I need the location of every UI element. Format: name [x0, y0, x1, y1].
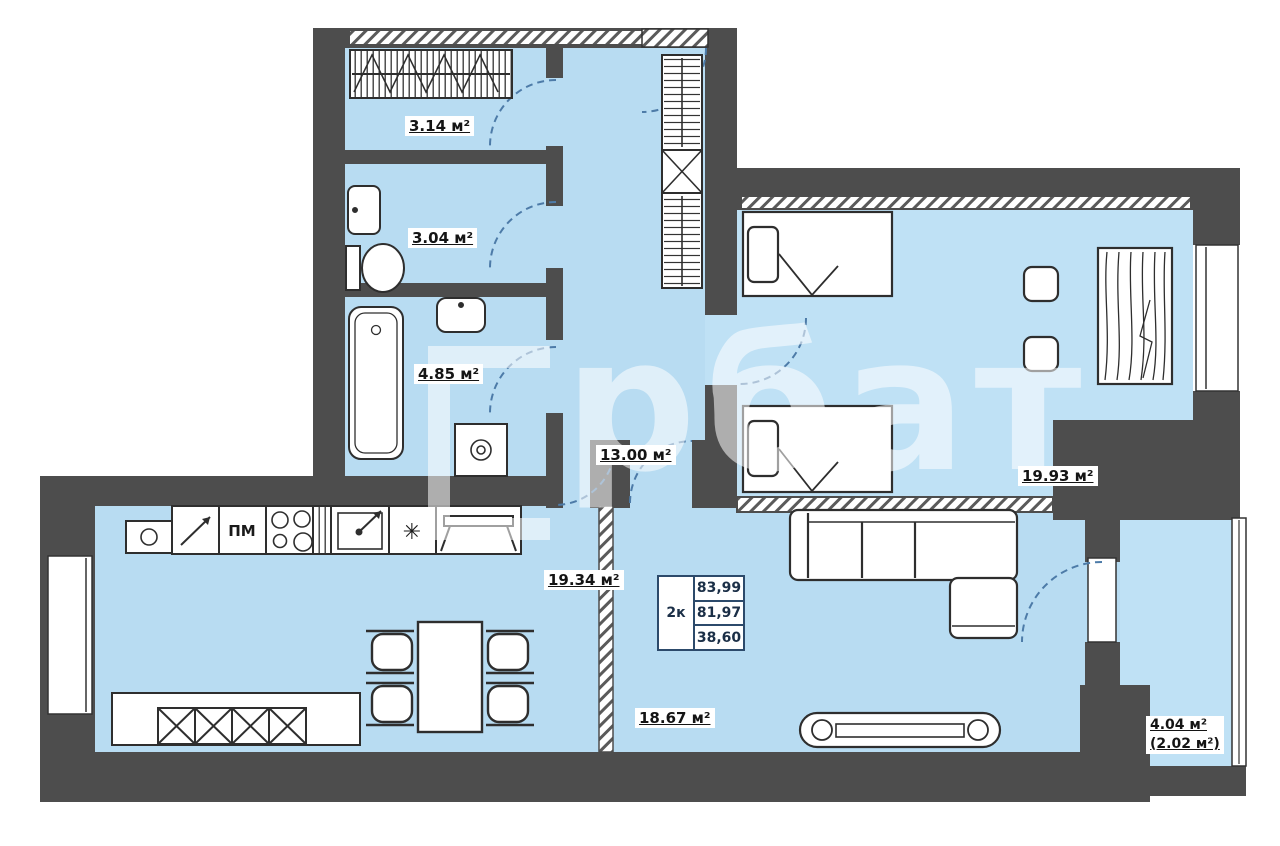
counter-table-top — [444, 516, 513, 526]
balcony-area-main: 4.04 м² — [1150, 716, 1207, 735]
bathroom-sink-faucet — [459, 303, 463, 307]
wall-closet-wc — [345, 150, 546, 164]
wall-left-upper — [313, 28, 345, 508]
burner-2 — [294, 511, 310, 527]
desk — [1098, 248, 1172, 384]
wc-area-label: 3.04 м² — [408, 228, 477, 248]
apartment-info-table: 2к 83,99 81,97 38,60 — [657, 575, 745, 651]
entrance-door-leaf — [642, 29, 708, 47]
closet-wardrobe — [350, 50, 512, 98]
balcony-area-label: 4.04 м² (2.02 м²) — [1146, 716, 1224, 754]
burner-4 — [294, 533, 312, 551]
living-room-area-label: 18.67 м² — [635, 708, 715, 728]
hallway-wardrobe — [662, 55, 702, 288]
wall-hall-right-upper — [705, 28, 737, 315]
balcony-door-leaf — [1088, 558, 1116, 642]
kitchen-area-label: 19.34 м² — [544, 570, 624, 590]
burner-3 — [274, 535, 287, 548]
partition-kitchen-living — [599, 506, 613, 752]
bedroom-area-label: 19.93 м² — [1018, 466, 1098, 486]
wall-bedroom-right-upper — [1193, 168, 1240, 245]
stool-1 — [1024, 267, 1058, 301]
bathroom-area-label: 4.85 м² — [414, 364, 483, 384]
wall-bedroom-top-hatch — [742, 197, 1190, 208]
toilet-tank — [346, 246, 360, 290]
washing-machine-door-inner — [477, 446, 485, 454]
inner-area: 81,97 — [695, 602, 743, 627]
kitchen-counter — [126, 506, 521, 554]
wall-kitchen-top — [40, 476, 563, 506]
balcony-area-reduced: (2.02 м²) — [1150, 735, 1220, 754]
bed-2 — [743, 406, 892, 492]
total-area: 83,99 — [695, 577, 743, 602]
floor-plan: ПМ ✳ рбат 3.14 м² 3.04 м² 4.85 м² 13.00 … — [0, 0, 1280, 846]
wall-balcony-bottom — [1142, 766, 1246, 796]
closet-area-label: 3.14 м² — [405, 116, 474, 136]
wall-stub-right — [692, 440, 737, 508]
wall-step — [1080, 685, 1150, 802]
wall-living-right-2 — [1085, 642, 1120, 690]
living-area: 38,60 — [695, 626, 743, 649]
wall-rooms-right-1 — [546, 46, 563, 78]
hallway-area-label: 13.00 м² — [596, 445, 676, 465]
oven-knob — [141, 529, 157, 545]
kitchen-drainer — [313, 506, 331, 554]
bathtub-drain — [372, 326, 381, 335]
cabinet-x-boxes — [158, 708, 306, 744]
wall-bottom — [40, 752, 1150, 802]
stool-2 — [1024, 337, 1058, 371]
dining-table — [418, 622, 482, 732]
tv-stand — [800, 713, 1000, 747]
dishwasher-label: ПМ — [228, 522, 255, 540]
fridge-icon: ✳ — [403, 520, 421, 545]
bedroom-window — [1196, 245, 1238, 391]
bed-1 — [743, 212, 892, 296]
kitchen-cabinet — [112, 693, 360, 745]
wall-living-right-1 — [1085, 520, 1120, 562]
toilet-bowl — [362, 244, 404, 292]
wall-rooms-right-2 — [546, 146, 563, 206]
burner-1 — [272, 512, 288, 528]
wc-sink-faucet — [353, 208, 357, 212]
apartment-type: 2к — [659, 577, 695, 649]
wall-hall-right-lower — [705, 385, 737, 440]
wall-rooms-right-3 — [546, 268, 563, 340]
